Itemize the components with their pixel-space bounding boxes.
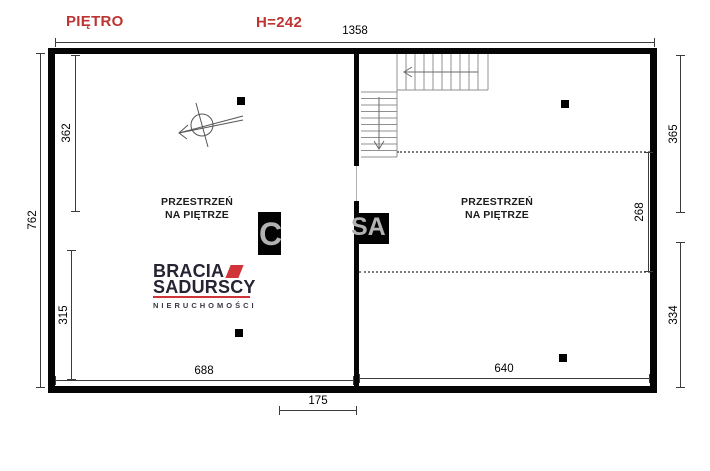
knee-wall-line-lower xyxy=(359,271,650,273)
door-opening-line xyxy=(356,166,357,201)
column-marker-top-left xyxy=(237,97,245,105)
dimension-line-right-inner xyxy=(648,152,649,272)
dimension-line-bottom-left xyxy=(55,380,354,381)
dimension-left-inner-top: 362 xyxy=(60,116,74,150)
room-label-left-line2: NA PIĘTRZE xyxy=(141,209,253,222)
dimension-left-inner-bottom: 315 xyxy=(57,298,71,332)
dimension-left-outer: 762 xyxy=(26,203,40,237)
dimension-top-total: 1358 xyxy=(255,25,455,37)
logo-brand-line2: SADURSCY xyxy=(153,279,263,295)
dimension-bottom-left: 688 xyxy=(154,365,254,377)
dimension-line-left-inner-top xyxy=(75,55,76,212)
dimension-line-top xyxy=(55,42,655,43)
dimension-line-left-inner-bottom xyxy=(71,250,72,380)
floor-title: PIĘTRO xyxy=(66,13,124,30)
agency-logo: BRACIA SADURSCY NIERUCHOMOŚCI xyxy=(153,263,263,310)
wall-right xyxy=(650,48,657,393)
dimension-bottom-right: 640 xyxy=(454,363,554,375)
staircase-icon xyxy=(354,48,494,160)
dimension-bottom-center: 175 xyxy=(268,395,368,407)
room-label-right: PRZESTRZEŃ NA PIĘTRZE xyxy=(441,196,553,222)
room-label-right-line1: PRZESTRZEŃ xyxy=(441,196,553,209)
watermark-fragment-left: C xyxy=(258,212,281,255)
column-marker-top-right xyxy=(561,100,569,108)
dimension-line-bottom-right xyxy=(359,378,650,379)
wall-left xyxy=(48,48,55,393)
wall-top xyxy=(48,48,657,54)
room-label-left: PRZESTRZEŃ NA PIĘTRZE xyxy=(141,196,253,222)
room-label-left-line1: PRZESTRZEŃ xyxy=(141,196,253,209)
room-label-right-line2: NA PIĘTRZE xyxy=(441,209,553,222)
dimension-right-outer-bottom: 334 xyxy=(667,298,681,332)
watermark-letter-c: C xyxy=(259,218,282,250)
wall-bottom xyxy=(48,386,657,393)
knee-wall-line-upper xyxy=(397,151,650,153)
dimension-line-bottom-center xyxy=(279,410,357,411)
column-marker-bottom-right xyxy=(559,354,567,362)
dimension-right-outer-top: 365 xyxy=(667,117,681,151)
watermark-fragment-right: SA xyxy=(358,213,389,244)
dimension-right-inner: 268 xyxy=(633,195,647,229)
watermark-letters-sa: SA xyxy=(351,212,386,243)
logo-brand-line3: NIERUCHOMOŚCI xyxy=(153,301,263,310)
column-marker-bottom-left xyxy=(235,329,243,337)
dimension-line-left-outer xyxy=(40,53,41,388)
floor-plan-canvas: PIĘTRO H=242 1358 xyxy=(0,0,710,471)
